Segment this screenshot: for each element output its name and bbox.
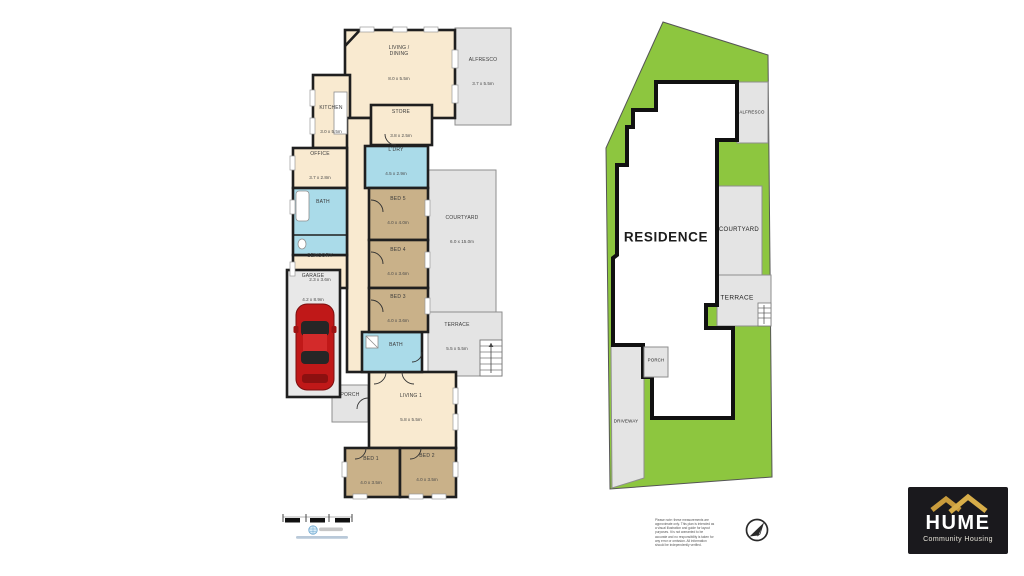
room-courtyard-area	[428, 170, 496, 312]
room-laundry	[365, 146, 428, 188]
watermark-url-blur	[296, 536, 348, 539]
disclaimer-text: Please note: these measurements are appr…	[655, 518, 715, 547]
room-store	[371, 105, 432, 145]
watermark	[296, 526, 348, 539]
site-porch-area	[644, 347, 668, 377]
hume-logo-name: HUME	[926, 513, 991, 533]
room-bed3	[369, 288, 428, 332]
room-alfresco-area	[455, 28, 511, 125]
compass-icon	[747, 520, 768, 541]
hume-logo: HUME Community Housing	[908, 487, 1008, 554]
site-courtyard-area	[717, 186, 762, 275]
toilet-icon	[298, 239, 306, 249]
floorplan-page: LIVING / DINING 8.0 x 5.5m ALFRESCO 3.7 …	[0, 0, 1024, 576]
floorplan-drawing	[287, 27, 511, 499]
site-driveway-area	[611, 346, 644, 488]
room-bed2	[400, 448, 456, 497]
room-living1	[369, 372, 456, 448]
bathtub-icon	[296, 191, 309, 221]
plan-graphics	[0, 0, 1024, 576]
room-bed1	[345, 448, 400, 497]
room-bed4	[369, 240, 428, 288]
room-bed5	[369, 188, 428, 240]
site-terrace-stairs-icon	[758, 303, 771, 326]
kitchen-island	[334, 92, 347, 134]
scale-bar	[283, 514, 352, 523]
room-office	[293, 148, 347, 188]
terrace-stairs-icon	[480, 340, 502, 376]
watermark-brand-blur	[319, 528, 343, 532]
site-alfresco-area	[737, 82, 768, 143]
hume-logo-tagline: Community Housing	[923, 536, 993, 543]
siteplan-drawing	[606, 22, 772, 489]
hume-roof-icon	[908, 487, 1008, 515]
car-icon	[294, 304, 337, 390]
